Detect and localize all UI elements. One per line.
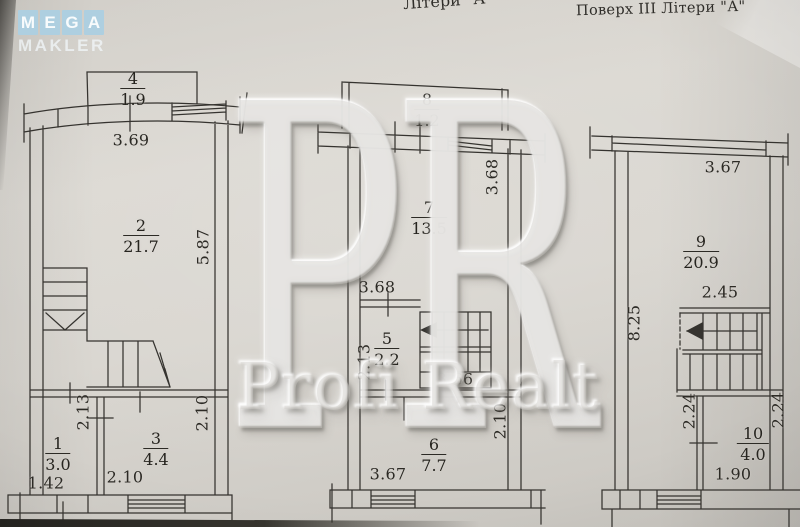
room-label-6: 6 7.7	[421, 437, 446, 475]
dim-left-room3-h: 2.10	[193, 395, 212, 432]
room-label-10: 10 4.0	[737, 426, 769, 464]
room-area: 1.2	[414, 110, 439, 130]
mega-makler-logo: M E G A MAKLER	[18, 10, 106, 56]
room-number: 5	[374, 331, 399, 349]
dim-mid-room6-h: 2.10	[491, 403, 510, 440]
floorplan-photo: 4 1.9 2 21.7 1 3.0 3 4.4 3.69 5.87 2.13 …	[0, 0, 800, 527]
room-number: 8	[414, 92, 439, 110]
dim-mid-room5-h: 2.13	[355, 344, 374, 381]
room-area: 1.9	[120, 89, 145, 109]
room-area: 7.7	[421, 455, 446, 475]
dim-left-top: 3.69	[113, 131, 150, 150]
room-area: 21.7	[123, 236, 159, 256]
dim-mid-right-top: 3.68	[483, 159, 502, 196]
dim-left-room1-w: 1.42	[28, 474, 65, 493]
dim-mid-inner: 3.68	[359, 278, 396, 297]
room-label-9: 9 20.9	[683, 234, 719, 272]
room-label-2: 2 21.7	[123, 218, 159, 256]
room-label-8: 8 1.2	[414, 92, 439, 130]
room-number: 1	[45, 436, 70, 454]
room-area: 4.4	[143, 449, 168, 469]
room-area: 4.0	[737, 444, 769, 464]
dim-mid-bottom: 3.67	[370, 465, 407, 484]
dim-right-top: 3.67	[705, 158, 742, 177]
dim-mid-stairs-w: 3.66	[437, 370, 474, 389]
room-number: 2	[123, 218, 159, 236]
room-area: 3.0	[45, 454, 70, 474]
logo-tiles: M E G A	[18, 10, 106, 35]
room-label-4: 4 1.9	[120, 71, 145, 109]
dim-right-stairs-w: 2.45	[702, 283, 739, 302]
logo-tile-letter: A	[84, 10, 104, 35]
dim-right-room10-l: 2.24	[680, 393, 699, 430]
room-number: 4	[120, 71, 145, 89]
logo-tile-letter: E	[40, 10, 60, 35]
room-number: 3	[143, 431, 168, 449]
logo-subtitle: MAKLER	[18, 36, 106, 56]
room-number: 6	[421, 437, 446, 455]
room-label-7: 7 13.5	[411, 200, 447, 238]
dim-right-room10-w: 1.90	[715, 465, 752, 484]
dim-right-left-h: 8.25	[625, 305, 644, 342]
dim-left-room3-w: 2.10	[107, 468, 144, 487]
room-number: 10	[737, 426, 769, 444]
room-number: 9	[683, 234, 719, 252]
room-label-5: 5 2.2	[374, 331, 399, 369]
dim-left-right: 5.87	[194, 229, 213, 266]
room-number: 7	[411, 200, 447, 218]
dim-left-wall: 2.13	[74, 394, 93, 431]
room-area: 13.5	[411, 218, 447, 238]
dim-right-room10-r: 2.24	[769, 392, 788, 429]
logo-tile-letter: M	[18, 10, 38, 35]
floorplan-right	[590, 127, 800, 527]
room-label-3: 3 4.4	[143, 431, 168, 469]
room-area: 2.2	[374, 349, 399, 369]
logo-tile-letter: G	[62, 10, 82, 35]
room-label-1: 1 3.0	[45, 436, 70, 474]
room-area: 20.9	[683, 252, 719, 272]
